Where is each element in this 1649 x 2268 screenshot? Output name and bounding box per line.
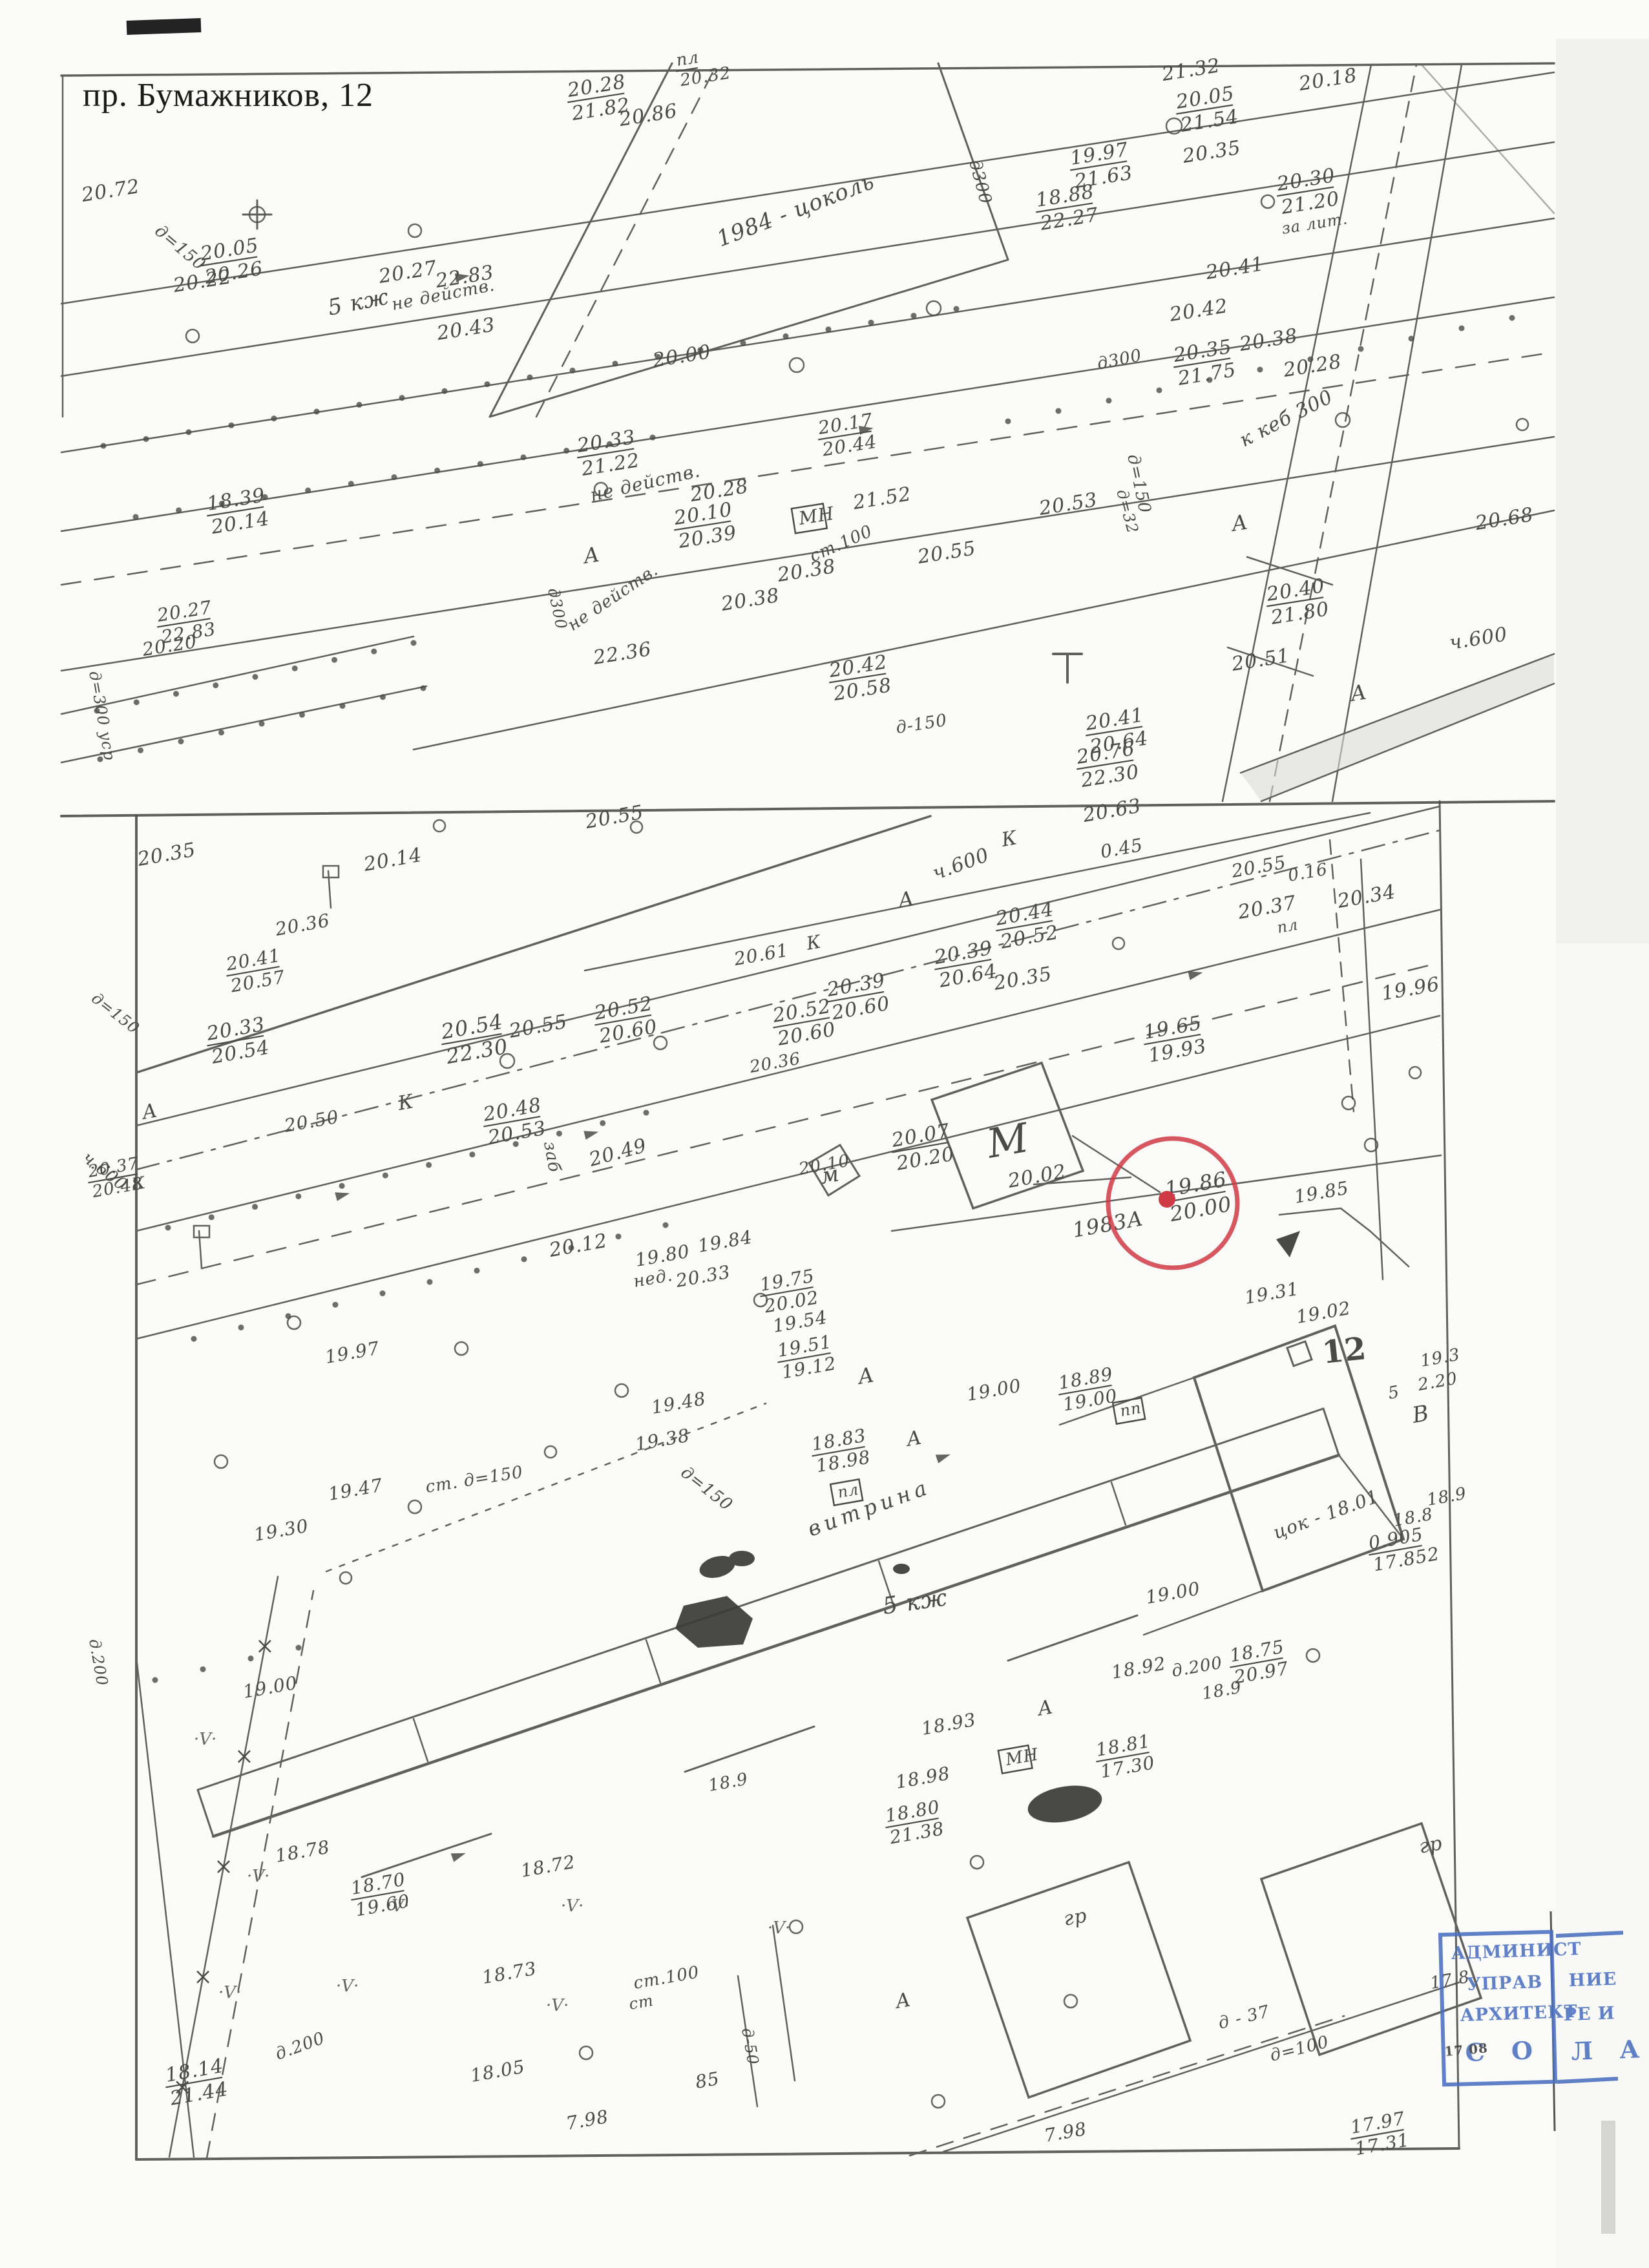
manhole-circle [1409, 1067, 1421, 1078]
manhole-circle [927, 301, 941, 315]
survey-dot [165, 1225, 171, 1231]
map-label-text: д-50 [738, 2026, 762, 2066]
survey-dot [826, 326, 832, 332]
map-label: А [1228, 509, 1250, 536]
manhole-circle [615, 1384, 628, 1397]
map-label: 20.51 [1230, 644, 1292, 676]
survey-map-canvas: ·V··V··V··V··V··V··V··V· 20.2821.8220.86… [0, 0, 1649, 2268]
map-label: 22.36 [591, 638, 653, 669]
map-label: д-150 [894, 711, 949, 738]
map-label: 20.10 [797, 1151, 851, 1180]
manhole-circle [1342, 1097, 1355, 1109]
map-label: 7.98 [564, 2106, 610, 2134]
map-label-text: 20.35 [991, 963, 1054, 995]
map-label-text: 18.78 [273, 1836, 331, 1867]
map-label-text: ст [627, 1991, 655, 2013]
map-label: А [1347, 679, 1369, 706]
map-line [1053, 654, 1082, 682]
map-label: 20.55 [916, 537, 978, 569]
map-label-text: 20.18 [1297, 64, 1359, 96]
survey-dot [1358, 346, 1364, 352]
map-label: А [139, 1099, 159, 1124]
map-label-text: 5 [1387, 1382, 1401, 1403]
survey-dot [1409, 336, 1414, 342]
map-label: 20.35 [991, 963, 1054, 995]
map-label: ст.100 [632, 1962, 701, 1993]
map-line [1261, 1823, 1481, 2055]
map-line [136, 2148, 1459, 2159]
survey-dot [521, 454, 527, 460]
map-label-text: 20.49 [586, 1134, 649, 1171]
map-line [1279, 1208, 1409, 1266]
map-label: 20.49 [586, 1134, 649, 1171]
map-label-text: А [895, 886, 916, 913]
survey-dot [259, 721, 265, 727]
map-label-text: 20.53 [1037, 488, 1099, 520]
map-label-text: 20.63 [1080, 795, 1143, 827]
map-label: 20.35 [1181, 136, 1243, 168]
map-label-text: 7.98 [564, 2106, 610, 2134]
map-line [1330, 840, 1354, 1111]
manhole-circle [654, 1036, 667, 1049]
map-line [61, 218, 1554, 452]
survey-dot [616, 1234, 622, 1239]
map-label-text: д.200 [85, 1637, 111, 1687]
survey-dot [426, 1162, 432, 1168]
map-label: д=300 уср [85, 669, 119, 762]
flow-arrow [583, 1128, 600, 1140]
map-label: МН [792, 502, 836, 533]
map-line [198, 1409, 1339, 1836]
map-label: 20.41 [1204, 253, 1266, 284]
survey-dot [1257, 367, 1263, 373]
survey-dot [333, 1302, 339, 1308]
map-label-text: д300 [1095, 346, 1144, 374]
map-label-text: 5 кж [881, 1584, 950, 1620]
map-label: 20.63 [1080, 795, 1143, 827]
map-label: не действ. [564, 560, 662, 635]
map-label: 2.20 [1416, 1369, 1459, 1395]
map-label-text: 20.55 [507, 1011, 569, 1043]
map-line [729, 1551, 755, 1566]
map-label-text: 19.02 [1294, 1297, 1352, 1328]
map-label: А [580, 541, 602, 569]
scanned-survey-plan-page: пр. Бумажников, 12 [0, 0, 1649, 2268]
survey-dot [191, 1336, 197, 1342]
flow-arrow [451, 1849, 467, 1862]
vegetation-mark: ·V· [768, 1918, 790, 1938]
map-label-text: ч.600 [930, 844, 993, 885]
survey-dot [340, 703, 346, 709]
map-label-text: 19.30 [252, 1515, 310, 1546]
map-label: 20.43 [435, 313, 497, 345]
map-label-text: 20.27 [377, 257, 439, 288]
map-label: 20.61 [732, 940, 791, 970]
map-label-text: А [892, 1988, 912, 2013]
map-label: 20.4420.52 [992, 898, 1060, 954]
map-label: 19.3 [1419, 1345, 1462, 1371]
map-label: 18.1421.44 [162, 2054, 230, 2110]
map-label: 19.48 [649, 1388, 708, 1418]
map-line [1241, 654, 1554, 801]
map-label: А [1035, 1696, 1055, 1721]
map-label: 17.8 [1429, 1968, 1471, 1993]
flow-arrow [335, 1189, 351, 1201]
map-label: 18.73 [480, 1958, 538, 1988]
map-label: 18.98 [894, 1763, 952, 1793]
map-label: 20.50 [282, 1106, 341, 1137]
map-label: д.200 [85, 1637, 111, 1687]
map-label-text: 19.3 [1419, 1345, 1462, 1371]
survey-dot [485, 381, 490, 387]
manhole-circle [408, 1500, 421, 1513]
map-label: 20.4120.57 [223, 944, 287, 997]
map-label-text: 19.00 [965, 1375, 1023, 1405]
manhole-circle [215, 1455, 227, 1468]
map-label: 18.9 [1201, 1678, 1243, 1704]
survey-dot [252, 1204, 258, 1210]
map-line [61, 801, 1554, 816]
map-label: 20.28 [1281, 350, 1343, 382]
survey-dot [380, 1290, 386, 1296]
map-label-text: гр [1062, 1904, 1089, 1931]
map-label-text: 20.00 [651, 341, 713, 372]
map-label-text: 18.05 [468, 2056, 527, 2086]
survey-dot [1509, 315, 1515, 321]
paper-fold-shadow [1601, 2121, 1615, 2234]
vegetation-mark: ·V· [336, 1977, 359, 1996]
survey-dot [253, 674, 258, 680]
map-label: д=150 [88, 989, 143, 1038]
map-label-text: 20.10 [797, 1151, 851, 1180]
map-label-text: 19.97 [323, 1338, 381, 1368]
map-label: 18.8318.98 [808, 1424, 872, 1477]
map-label-text: к кеб 300 [1236, 386, 1337, 452]
map-label-text: 18.9 [707, 1770, 750, 1796]
map-label-text: А [1035, 1696, 1055, 1721]
map-label: 19.85 [1292, 1177, 1350, 1208]
survey-dot [371, 649, 377, 655]
map-label: 19.30 [252, 1515, 310, 1546]
map-label-text: 20.38 [719, 584, 781, 616]
survey-dot [331, 657, 337, 663]
map-label-text: 18.93 [919, 1709, 978, 1739]
survey-dot [200, 1666, 206, 1672]
map-label-text: 19.96 [1380, 973, 1442, 1005]
map-label: д300 [1095, 346, 1144, 374]
map-label-text: 21.52 [851, 483, 913, 514]
map-label-text: 20.72 [79, 175, 142, 207]
map-label: 20.3920.64 [930, 936, 999, 992]
survey-dot [644, 1110, 649, 1116]
map-label-text: 20.38 [775, 555, 837, 587]
survey-dot [783, 333, 789, 339]
survey-dot [178, 739, 184, 744]
map-label-text: 18.98 [894, 1763, 952, 1793]
map-label: 85 [693, 2068, 721, 2093]
map-label: А [855, 1362, 876, 1389]
stamp-label: Л А [1571, 2034, 1649, 2066]
stamp-label-text: РЕ И [1563, 2003, 1615, 2025]
vegetation-mark: ·V· [561, 1896, 583, 1916]
red-annotation-dot [1159, 1191, 1175, 1208]
scan-corner-mark [127, 18, 202, 35]
survey-dot [1157, 388, 1162, 394]
map-label: 20.02 [1005, 1160, 1068, 1193]
map-label-text: пл [1276, 916, 1299, 937]
map-label-text: гр [1417, 1832, 1444, 1858]
map-line [1556, 943, 1649, 2268]
map-label: 19.00 [1144, 1578, 1202, 1608]
survey-dot [348, 481, 354, 487]
manhole-circle [1517, 419, 1528, 430]
map-label: 20.38 [719, 584, 781, 616]
map-label: 5 кж [326, 284, 391, 320]
map-label-text: 20.34 [1335, 881, 1398, 913]
map-label: 20.0720.20 [888, 1119, 956, 1175]
map-label-text: А [1347, 679, 1369, 706]
survey-dot [299, 712, 305, 718]
map-label-text: 19.80 [633, 1241, 691, 1271]
map-label: пл20.32 [673, 43, 732, 91]
manhole-circle [1261, 195, 1274, 208]
map-label-text: 18.9 [1425, 1484, 1468, 1510]
map-label: 20.00 [651, 341, 713, 372]
map-label-text: ч.600 [1448, 623, 1509, 655]
map-label-text: В [1410, 1400, 1432, 1429]
map-label-text: А [1228, 509, 1250, 536]
map-label-text: 20.68 [1473, 503, 1535, 535]
survey-dot [954, 306, 960, 312]
map-label-text: д300 [544, 586, 571, 631]
map-line [490, 260, 1008, 417]
manhole-circle [932, 2095, 945, 2108]
map-label-text: 17.8 [1429, 1968, 1471, 1993]
survey-dot [1459, 326, 1465, 331]
map-label: 20.42 [1168, 295, 1230, 326]
map-label-text: витрина [804, 1474, 934, 1541]
map-label-text: 20.55 [916, 537, 978, 569]
survey-dot [427, 1279, 433, 1285]
map-label: 19.47 [326, 1475, 384, 1505]
map-line [323, 866, 339, 908]
map-label: 0.16 [1287, 860, 1329, 886]
manhole-circle [1113, 938, 1124, 949]
map-label: д300 [544, 586, 571, 631]
scan-artifacts [127, 18, 1649, 2268]
map-label-text: 12 [1320, 1330, 1368, 1371]
map-label: ст [627, 1991, 655, 2013]
survey-dot [563, 448, 569, 454]
stamp-label: РЕ И [1563, 2003, 1615, 2025]
map-label: 20.38 [775, 555, 837, 587]
map-label-text: 0.16 [1287, 860, 1329, 886]
survey-dot [383, 1173, 388, 1179]
map-label: 20.14 [361, 844, 424, 876]
map-label: А [892, 1988, 912, 2013]
survey-dot [238, 1325, 244, 1330]
map-label: 20.7622.30 [1073, 737, 1141, 793]
map-label: 5 [1387, 1382, 1401, 1403]
survey-dot [305, 488, 311, 494]
survey-dot [442, 388, 448, 394]
survey-dot [474, 1268, 480, 1274]
map-label: к кеб 300 [1236, 386, 1337, 452]
map-label: 18.9 [707, 1770, 750, 1796]
map-label-text: 19.47 [326, 1475, 384, 1505]
map-label: 5 кж [881, 1584, 950, 1620]
survey-dot [527, 375, 533, 381]
map-label-text: д=150 [88, 989, 143, 1038]
map-label: М [983, 1114, 1033, 1168]
survey-dot [229, 423, 235, 428]
survey-dot [521, 1256, 527, 1262]
map-label: д300 [965, 158, 995, 206]
map-label-text: не действ. [564, 560, 662, 635]
survey-dot [868, 320, 874, 326]
map-label: 18.05 [468, 2056, 527, 2086]
map-line [136, 806, 1440, 1126]
map-label-text: 20.42 [1168, 295, 1230, 326]
map-label: 20.20 [140, 631, 198, 660]
map-line [1361, 859, 1383, 1279]
map-label: 19.6519.93 [1140, 1011, 1208, 1067]
survey-dot [357, 402, 362, 408]
survey-dot [101, 443, 107, 449]
map-label: 19.96 [1380, 973, 1442, 1005]
survey-dot [176, 507, 182, 513]
map-label: 19.38 [633, 1425, 691, 1455]
survey-dot [740, 341, 746, 346]
survey-dot [911, 313, 917, 319]
map-label-text: 5 кж [326, 284, 391, 320]
map-label-text: 20.38 [1237, 324, 1299, 356]
survey-dot [138, 748, 143, 753]
stamp-label: АРХИТЕКТ [1460, 2002, 1578, 2026]
map-label-text: 18.73 [480, 1958, 538, 1988]
map-line [1422, 65, 1554, 213]
survey-dot [411, 640, 417, 646]
map-label: 19.84 [696, 1226, 754, 1257]
map-label: 20.34 [1335, 881, 1398, 913]
map-label-text: 21.32 [1160, 54, 1222, 86]
map-label: 0.90517.852 [1365, 1521, 1442, 1576]
survey-dot [271, 415, 277, 421]
map-label: 19.02 [1294, 1297, 1352, 1328]
survey-dot [392, 474, 397, 480]
map-label: 21.52 [851, 483, 913, 514]
map-label: 20.4220.58 [826, 651, 894, 706]
map-label-text: заб [540, 1140, 564, 1174]
survey-dot [570, 368, 576, 373]
manhole-circle [971, 1856, 983, 1869]
map-label-text: пл [675, 48, 700, 70]
manhole-circle [790, 1920, 803, 1933]
map-label: 0.45 [1098, 834, 1144, 863]
map-label-text: А [903, 1426, 923, 1451]
map-label: 18.3920.14 [204, 484, 271, 540]
map-label: В [1410, 1400, 1432, 1429]
survey-dot [556, 1131, 562, 1137]
map-label: 20.4021.80 [1263, 574, 1331, 630]
manhole-circle [580, 2046, 593, 2059]
map-label: д - 37 [1216, 2002, 1272, 2033]
vegetation-mark: ·V· [546, 1996, 569, 2015]
map-label-text: 22.36 [591, 638, 653, 669]
map-label-text: К [999, 826, 1019, 852]
map-label: ч.600 [930, 844, 993, 885]
map-label-text: цок - 18.01 [1270, 1486, 1381, 1544]
map-label: 20.38 [1237, 324, 1299, 356]
map-label: ст. д=150 [424, 1462, 524, 1497]
map-label-text: д=150 [677, 1463, 737, 1515]
map-label: А [903, 1426, 923, 1451]
survey-dot [134, 699, 140, 705]
map-label: 18.78 [273, 1836, 331, 1867]
survey-dot [173, 691, 179, 697]
map-label-text: 19.31 [1243, 1278, 1301, 1308]
manhole-circle [790, 358, 804, 372]
survey-dot [186, 429, 192, 435]
map-label: 17.9717.31 [1347, 2107, 1411, 2160]
map-label: 20.3521.75 [1170, 335, 1238, 391]
map-label-text: 20.22 [171, 266, 233, 297]
map-label: 20.5422.30 [437, 1009, 510, 1069]
survey-dot [314, 409, 320, 415]
map-line [738, 1926, 795, 2106]
map-label: 19.00 [965, 1375, 1023, 1405]
map-label: цок - 18.01 [1270, 1486, 1381, 1544]
map-label: 20.5220.60 [769, 994, 837, 1051]
map-label-text: 20.61 [732, 940, 791, 970]
manhole-circle [1336, 413, 1350, 427]
map-label: 19.5119.12 [774, 1330, 838, 1383]
map-label: 20.72 [79, 175, 142, 207]
survey-dot [469, 1151, 475, 1157]
map-label-text: 20.36 [748, 1049, 802, 1078]
survey-dot [600, 1120, 605, 1126]
map-line [213, 1455, 1339, 1836]
map-label: 20.18 [1297, 64, 1359, 96]
map-label-text: А [139, 1099, 159, 1124]
survey-dot [133, 514, 139, 520]
map-line [194, 1226, 209, 1268]
map-label: 20.35 [135, 839, 198, 871]
survey-dot [339, 1183, 345, 1189]
map-label: 20.3320.54 [203, 1013, 271, 1069]
map-label: гр [1417, 1832, 1444, 1858]
map-label-text: 2.20 [1416, 1369, 1459, 1395]
map-label: 12 [1320, 1330, 1368, 1371]
map-line [893, 1564, 910, 1574]
survey-dot [292, 666, 298, 671]
map-label-text: 19.00 [241, 1672, 299, 1703]
map-label: 20.5220.60 [591, 992, 659, 1048]
map-label: 20.55 [507, 1011, 569, 1043]
survey-dot [663, 1223, 669, 1228]
survey-dot [650, 435, 656, 441]
map-label-text: 20.50 [282, 1106, 341, 1137]
map-label-text: 18.9 [1201, 1678, 1243, 1704]
map-label: 20.55 [583, 801, 646, 834]
manhole-circle [455, 1342, 468, 1355]
map-label-text: 19.84 [696, 1226, 754, 1257]
map-label: гр [1062, 1904, 1089, 1931]
manhole-circle [1307, 1649, 1319, 1662]
map-label: 21.32 [1160, 54, 1222, 86]
map-label: 20.1020.39 [671, 498, 739, 554]
map-label: 19.80 [633, 1241, 691, 1271]
